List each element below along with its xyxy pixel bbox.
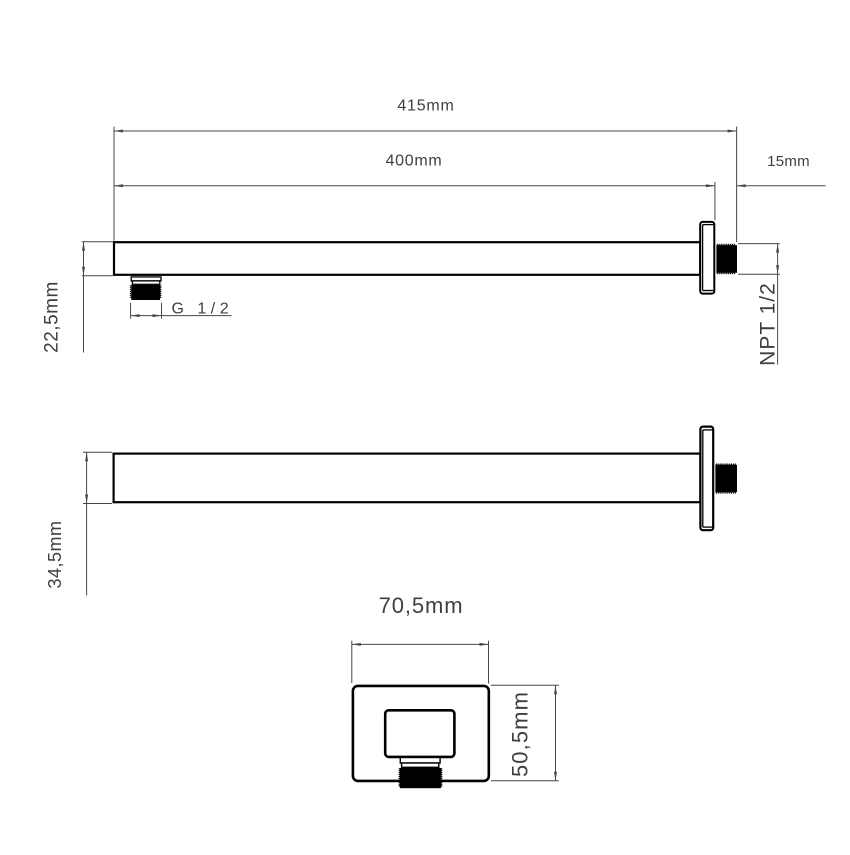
svg-text:34,5mm: 34,5mm — [45, 520, 65, 588]
svg-text:22,5mm: 22,5mm — [42, 281, 63, 353]
svg-text:415mm: 415mm — [397, 98, 454, 115]
svg-text:400mm: 400mm — [386, 153, 443, 170]
svg-text:NPT 1/2: NPT 1/2 — [757, 282, 780, 366]
svg-text:50,5mm: 50,5mm — [508, 691, 533, 777]
svg-text:15mm: 15mm — [767, 153, 810, 170]
svg-text:G 1/2: G 1/2 — [172, 301, 234, 318]
svg-text:70,5mm: 70,5mm — [379, 593, 464, 618]
